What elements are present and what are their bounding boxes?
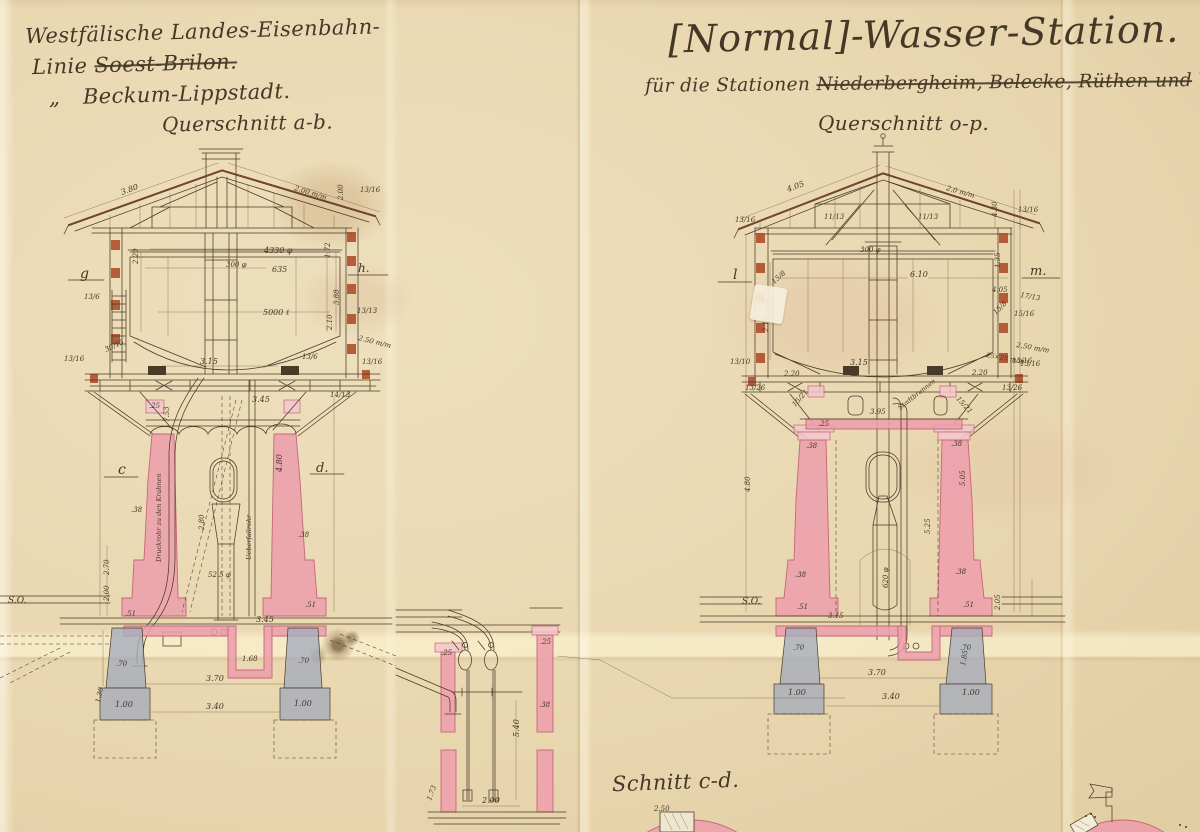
dimension-label: 3.15 bbox=[200, 357, 218, 366]
ditto-mark: „ bbox=[27, 82, 84, 115]
dimension-label: 4.80 bbox=[744, 476, 752, 493]
section-letter: l bbox=[733, 267, 737, 283]
dimension-label: 2.05 bbox=[994, 594, 1002, 611]
dimension-label: .70 bbox=[298, 657, 310, 665]
dimension-label: .51 bbox=[797, 603, 808, 611]
dimension-label: 4.05 bbox=[785, 179, 806, 194]
dimension-label: .51 bbox=[125, 610, 136, 618]
caption-section-op: Querschnitt o-p. bbox=[818, 111, 989, 135]
dimension-label: 5.25 bbox=[924, 518, 932, 534]
dimension-label: .70 bbox=[793, 644, 805, 652]
dimension-label: .38 bbox=[298, 531, 310, 539]
section-letter: c bbox=[118, 462, 126, 478]
dimension-label: 11/13 bbox=[824, 213, 845, 221]
right-tower-section bbox=[700, 134, 1065, 754]
dimension-label: 1.00 bbox=[294, 699, 312, 708]
dimension-label: 13/6 bbox=[84, 293, 100, 301]
disc-plan-detail bbox=[1044, 784, 1200, 832]
dimension-label: 13/26 bbox=[1002, 384, 1023, 392]
dimension-label: 2.50 bbox=[653, 805, 670, 813]
dimension-label: 1.72 bbox=[324, 242, 332, 258]
dimension-label: Druckrohr zu den Krahnen bbox=[155, 473, 163, 563]
dimension-label: 2.20 bbox=[971, 369, 988, 377]
dimension-label: 15/21 bbox=[955, 395, 974, 415]
right-tower-annotations: 4.052.0 m/m13/164.3011/1311/1313/16300 φ… bbox=[730, 179, 1050, 701]
dimension-label: 13/16 bbox=[1020, 360, 1041, 368]
dimension-label: .25 bbox=[441, 649, 453, 657]
dimension-label: 4.30 bbox=[991, 201, 999, 218]
dimension-label: .38 bbox=[955, 568, 967, 576]
dimension-label: .38 bbox=[131, 506, 143, 514]
dimension-label: 13/13 bbox=[357, 307, 378, 315]
dimension-label: .38 bbox=[951, 440, 963, 448]
section-letter: h. bbox=[358, 261, 370, 275]
section-letter: m. bbox=[1030, 264, 1046, 279]
dimension-label: 13/10 bbox=[730, 358, 751, 366]
struck-line-name: Soest-Brilon. bbox=[94, 49, 237, 77]
dimension-label: 2.00 bbox=[103, 585, 111, 602]
section-letter: d. bbox=[316, 461, 328, 476]
dimension-label: .70 bbox=[116, 660, 128, 668]
dimension-label: 5.40 bbox=[512, 719, 521, 737]
dimension-label: 52.5 φ bbox=[208, 571, 231, 579]
struck-station-names: Niederbergheim, Belecke, Rüthen und bbox=[816, 70, 1192, 95]
dimension-label: .38 bbox=[806, 442, 818, 450]
drawing-sheet: 3.802.00 m/m2.0013/164330 φ635300 φ5000 … bbox=[0, 0, 1200, 832]
dimension-label: 620 φ bbox=[882, 567, 890, 588]
dimension-label: 2.00 m/m bbox=[292, 184, 328, 202]
dimension-label: 3.40 bbox=[206, 702, 224, 711]
ring-plan-detail bbox=[604, 812, 780, 832]
dimension-label: 2.00 bbox=[481, 796, 500, 805]
dimension-label: 13/16 bbox=[735, 216, 756, 224]
dimension-label: .38 bbox=[539, 701, 551, 709]
dimension-label: 4.05 bbox=[991, 286, 1008, 294]
dimension-label: 13/26 bbox=[745, 384, 766, 392]
dimension-label: 4330 φ bbox=[263, 246, 293, 255]
section-letter: g bbox=[80, 266, 89, 282]
dimension-label: 2.20 bbox=[132, 248, 140, 265]
dimension-label: 2.50 m/m bbox=[357, 334, 393, 350]
dimension-label: 3.95 bbox=[870, 408, 886, 416]
dimension-label: .51 bbox=[305, 601, 316, 609]
dimension-label: 13/16 bbox=[1018, 206, 1039, 214]
dimension-label: .25 bbox=[540, 638, 552, 646]
dimension-label: 17/13 bbox=[1020, 291, 1042, 302]
dimension-label: .38 bbox=[795, 571, 807, 579]
dimension-label: 14/13 bbox=[330, 391, 351, 399]
dimension-label: 7.53 bbox=[163, 406, 171, 422]
dimension-label: 3.45 bbox=[252, 395, 270, 404]
dimension-label: 300 φ bbox=[226, 261, 247, 269]
dimension-label: 2.20 bbox=[783, 370, 800, 378]
dimension-label: 1.73 bbox=[425, 784, 438, 802]
dimension-label: 3.15 bbox=[828, 612, 844, 620]
dimension-label: 3.45 bbox=[256, 615, 274, 624]
dimension-label: Ueberfallrohr bbox=[245, 514, 253, 560]
dimension-label: 1.00 bbox=[115, 700, 133, 709]
dimension-label: 3.40 bbox=[882, 692, 900, 701]
dimension-label: 3.70 bbox=[868, 668, 886, 677]
dimension-label: 2.00 bbox=[337, 184, 345, 201]
dimension-label: 4.80 bbox=[275, 454, 284, 473]
dimension-label: 1.68 bbox=[242, 655, 258, 663]
dimension-label: 13/16 bbox=[360, 186, 381, 194]
dimension-label: 6.10 bbox=[910, 270, 928, 279]
dimension-label: 3.15 bbox=[850, 358, 868, 367]
caption-section-cd: Schnitt c-d. bbox=[612, 768, 740, 796]
dimension-label: 13/6 bbox=[302, 353, 318, 361]
section-letter: S.O. bbox=[742, 597, 761, 607]
dimension-label: 13/16 bbox=[362, 358, 383, 366]
weathervane-flag-icon bbox=[1089, 784, 1112, 798]
dimension-label: 5.05 bbox=[959, 470, 967, 486]
dimension-label: .25 bbox=[818, 420, 830, 428]
dimension-label: 3.88 bbox=[333, 289, 341, 305]
dimension-label: 13/16 bbox=[64, 355, 85, 363]
dimension-label: 635 bbox=[272, 265, 287, 274]
dimension-label: .51 bbox=[963, 601, 974, 609]
dimension-label: 2.80 bbox=[198, 514, 206, 531]
dimension-label: 1.00 bbox=[788, 688, 806, 697]
left-tower-section bbox=[0, 149, 396, 758]
section-letter: S.O. bbox=[8, 596, 27, 606]
dimension-label: 2.10 bbox=[326, 314, 334, 331]
title-block-left: Westfälische Landes-Eisenbahn- Linie Soe… bbox=[25, 11, 407, 115]
dimension-label: 2.70 bbox=[103, 559, 111, 576]
dimension-label: 300 φ bbox=[860, 246, 881, 254]
dimension-label: 1.35 bbox=[994, 252, 1002, 268]
dimension-label: .25 bbox=[149, 402, 161, 410]
paper-scrap-artifact bbox=[749, 284, 787, 325]
dimension-label: 11/13 bbox=[918, 213, 939, 221]
dimension-label: 3.70 bbox=[206, 674, 224, 683]
dimension-label: 15/16 bbox=[1014, 310, 1035, 318]
dimension-label: 5000 ℓ bbox=[263, 308, 290, 317]
dimension-label: 1.00 bbox=[962, 688, 980, 697]
caption-section-ab: Querschnitt a-b. bbox=[162, 110, 333, 137]
